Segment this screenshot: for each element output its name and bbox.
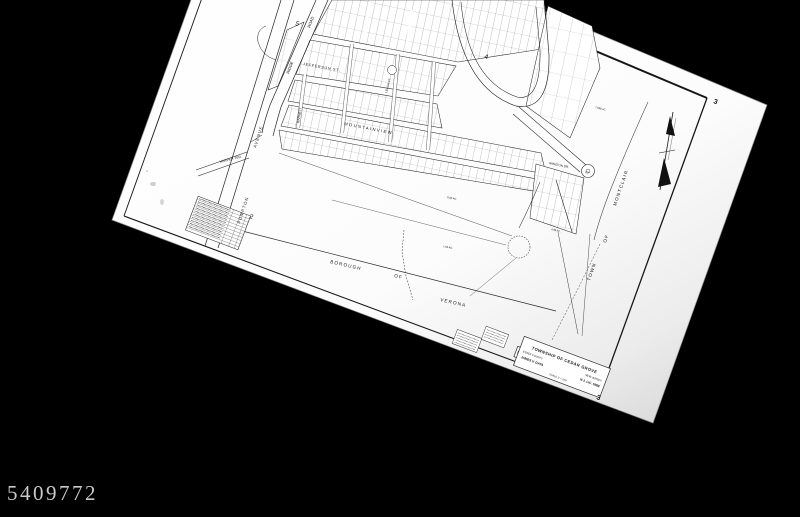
tax-map-sheet: TOWNSHIP OF CEDAR GROVE ESSEX COUNTY NEW… bbox=[0, 0, 800, 517]
scanned-tax-map-viewer: TOWNSHIP OF CEDAR GROVE ESSEX COUNTY NEW… bbox=[0, 0, 800, 517]
watermark-id: 5409772 bbox=[7, 481, 98, 506]
